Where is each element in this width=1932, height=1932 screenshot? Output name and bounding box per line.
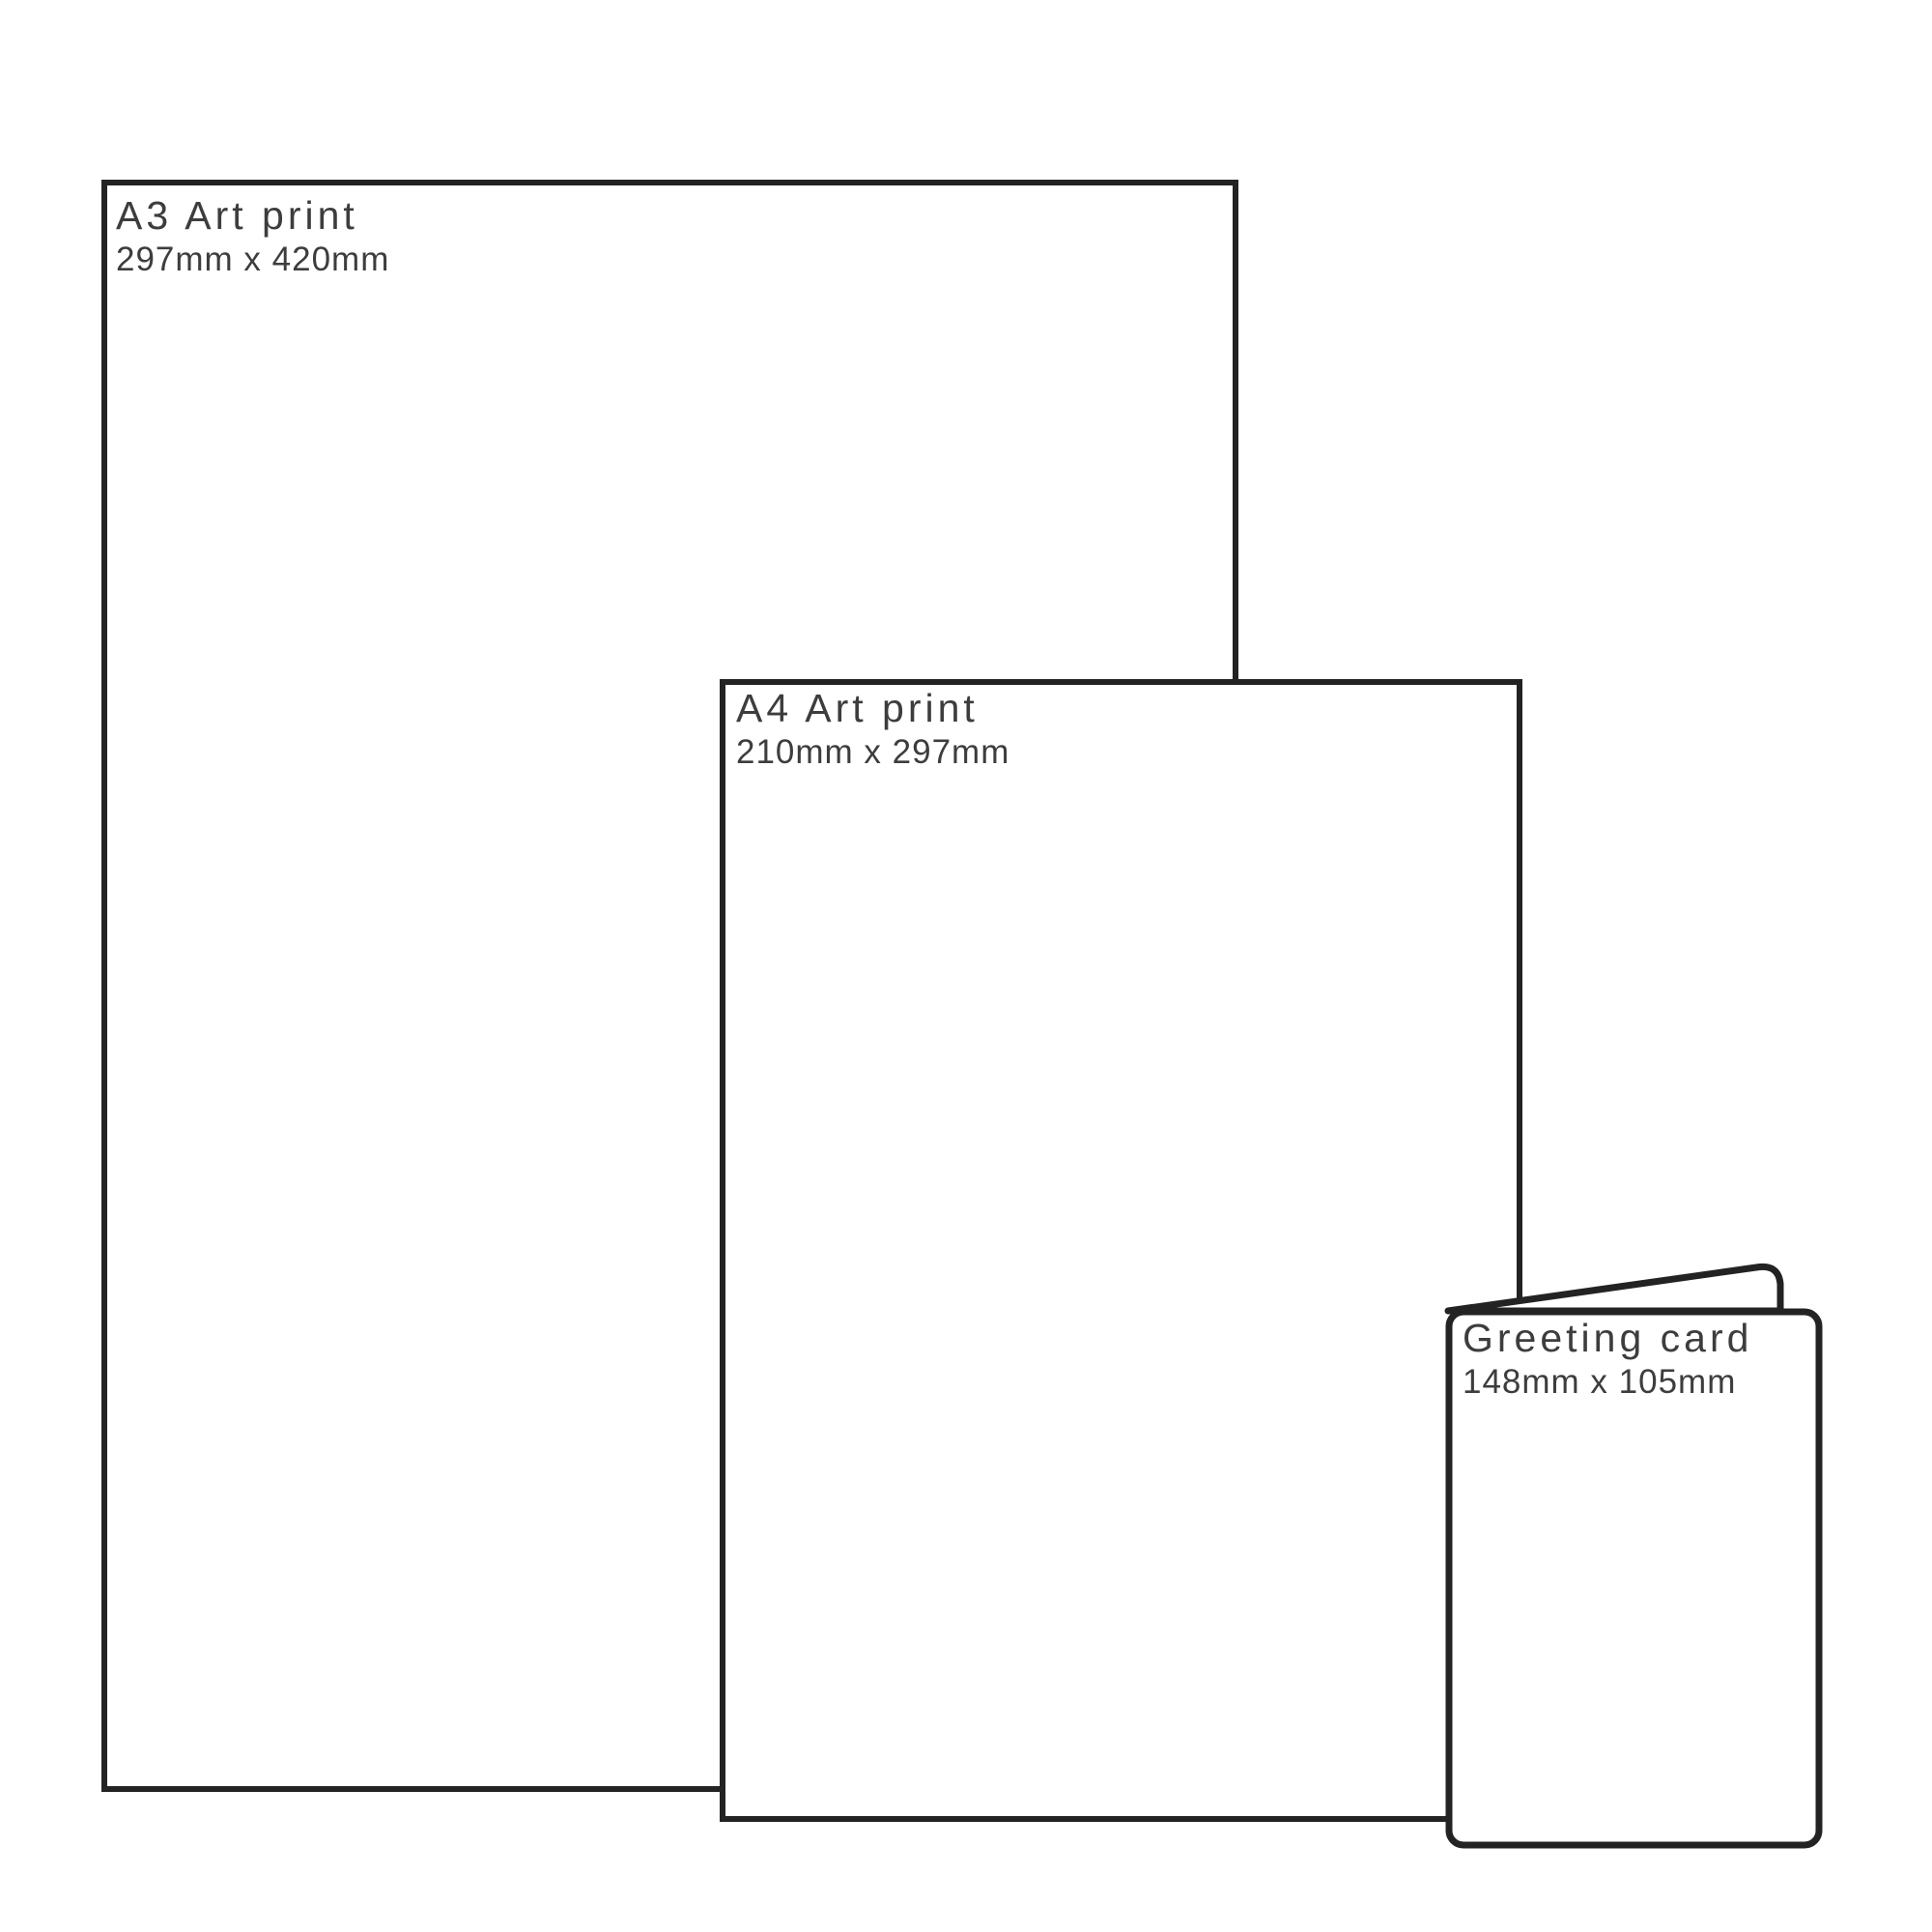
greeting-card-front-outline [1449,1312,1819,1845]
print-size-comparison-diagram: A3 Art print 297mm x 420mm A4 Art print … [0,0,1932,1932]
size-outlines-canvas [0,0,1932,1932]
a4-print-outline [723,682,1520,1819]
